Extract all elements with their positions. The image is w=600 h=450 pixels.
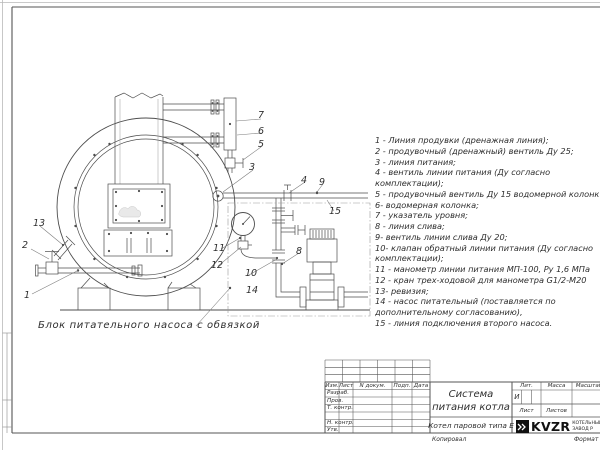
feed-pump (300, 229, 368, 310)
legend-line: 15 - линия подключения второго насоса. (375, 318, 599, 329)
legend-line: 4 - вентиль линии питания (Ду согласно (375, 167, 599, 178)
left-margin-cells (3, 333, 13, 433)
legend-line: 3 - линия питания; (375, 157, 599, 168)
tb-row-tkontr: Т. контр. (325, 405, 353, 413)
logo-sub-line1: КОТЕЛЬНЫЙ (572, 421, 600, 426)
tb-sheet-label: Лист (512, 405, 541, 417)
kvzr-logo-icon (516, 420, 529, 433)
callout-5: 5 (258, 139, 264, 150)
column-drain-valve (225, 150, 243, 173)
legend-line: 9- вентиль линии слива Ду 20; (375, 232, 599, 243)
callout-8: 8 (296, 246, 302, 257)
tb-col-data: Дата (412, 383, 430, 390)
pressure-gauge (232, 213, 277, 259)
legend-line: 2 - продувочный (дренажный) вентиль Ду 2… (375, 146, 599, 157)
feed-line (213, 185, 368, 201)
boiler-front-view (57, 93, 370, 310)
legend: 1 - Линия продувки (дренажная линия); 2 … (375, 135, 599, 329)
tb-col-ndoc: N докум. (353, 383, 392, 390)
callout-14: 14 (246, 285, 258, 296)
drawing-caption: Блок питательного насоса с обвязкой (38, 320, 260, 331)
legend-line: дополнительному согласованию), (375, 307, 599, 318)
callout-2: 2 (22, 240, 28, 251)
tb-col-izm: Изм. (325, 383, 339, 390)
callout-3: 3 (249, 162, 255, 173)
logo-subtext: КОТЕЛЬНЫЙ ЗАВОД Р (572, 421, 600, 432)
tb-row-utv: Утв. (325, 427, 353, 434)
callout-7: 7 (258, 110, 264, 121)
boiler-stack (115, 93, 163, 184)
legend-line: 13- ревизия; (375, 286, 599, 297)
burner-hatch (108, 184, 170, 228)
tb-lit-label: Лит. (512, 383, 541, 390)
legend-line: комплектации); (375, 253, 599, 264)
tb-row-nkontr: Н. контр. (325, 420, 353, 427)
callout-leaders (31, 119, 334, 326)
three-way-cock (238, 241, 248, 249)
company-logo: KVZR КОТЕЛЬНЫЙ ЗАВОД Р (516, 419, 600, 434)
legend-line: 5 - продувочный вентиль Ду 15 водомерной… (375, 189, 599, 200)
water-gauge-column (163, 98, 243, 173)
product-name: Котел паровой типа Е (430, 417, 512, 433)
mounting-plate (104, 230, 172, 256)
callout-1: 1 (24, 290, 30, 301)
tb-sheets-label: Листов (541, 405, 572, 417)
tb-col-list: Лист (339, 383, 353, 390)
tb-row-prov: Пров. (325, 397, 353, 405)
callout-13: 13 (33, 218, 45, 229)
callout-9: 9 (319, 177, 325, 188)
legend-line: 8 - линия слива; (375, 221, 599, 232)
callout-10: 10 (245, 268, 257, 279)
pump-block-boundary (228, 203, 370, 316)
logo-text: KVZR (531, 419, 570, 434)
legend-line: 7 - указатель уровня; (375, 210, 599, 221)
callout-4: 4 (301, 175, 307, 186)
footer-copied-by: Копировал (432, 436, 466, 443)
legend-line: 6- водомерная колонка; (375, 200, 599, 211)
doc-title-line1: Система (430, 388, 512, 401)
tb-scale-label: Масштаб (572, 383, 600, 390)
legend-line: 10- клапан обратный линии питания (Ду со… (375, 243, 599, 254)
legend-line: 14 - насос питательный (поставляется по (375, 296, 599, 307)
legend-line: 11 - манометр линии питания МП-100, Ру 1… (375, 264, 599, 275)
boiler-supports (60, 278, 370, 310)
callout-11: 11 (213, 243, 225, 254)
footer-format: Формат (574, 436, 598, 443)
sketch-blob (119, 206, 141, 217)
doc-title-line2: питания котла (430, 401, 512, 414)
boiler-bolt-dots (74, 143, 217, 278)
drawing-sheet: { "drawing": { "caption": "Блок питатель… (0, 0, 600, 450)
logo-sub-line2: ЗАВОД Р (572, 427, 600, 432)
callout-6: 6 (258, 126, 264, 137)
callout-15: 15 (329, 206, 341, 217)
callout-12: 12 (211, 260, 223, 271)
legend-line: 1 - Линия продувки (дренажная линия); (375, 135, 599, 146)
legend-line: 12 - кран трех-ходовой для манометра G1/… (375, 275, 599, 286)
tb-lit-value: И (512, 390, 522, 404)
tb-mass-label: Масса (541, 383, 572, 390)
legend-line: комплектации); (375, 178, 599, 189)
tb-col-podp: Подп. (392, 383, 412, 390)
tb-row-razrab: Разраб. (325, 390, 353, 398)
